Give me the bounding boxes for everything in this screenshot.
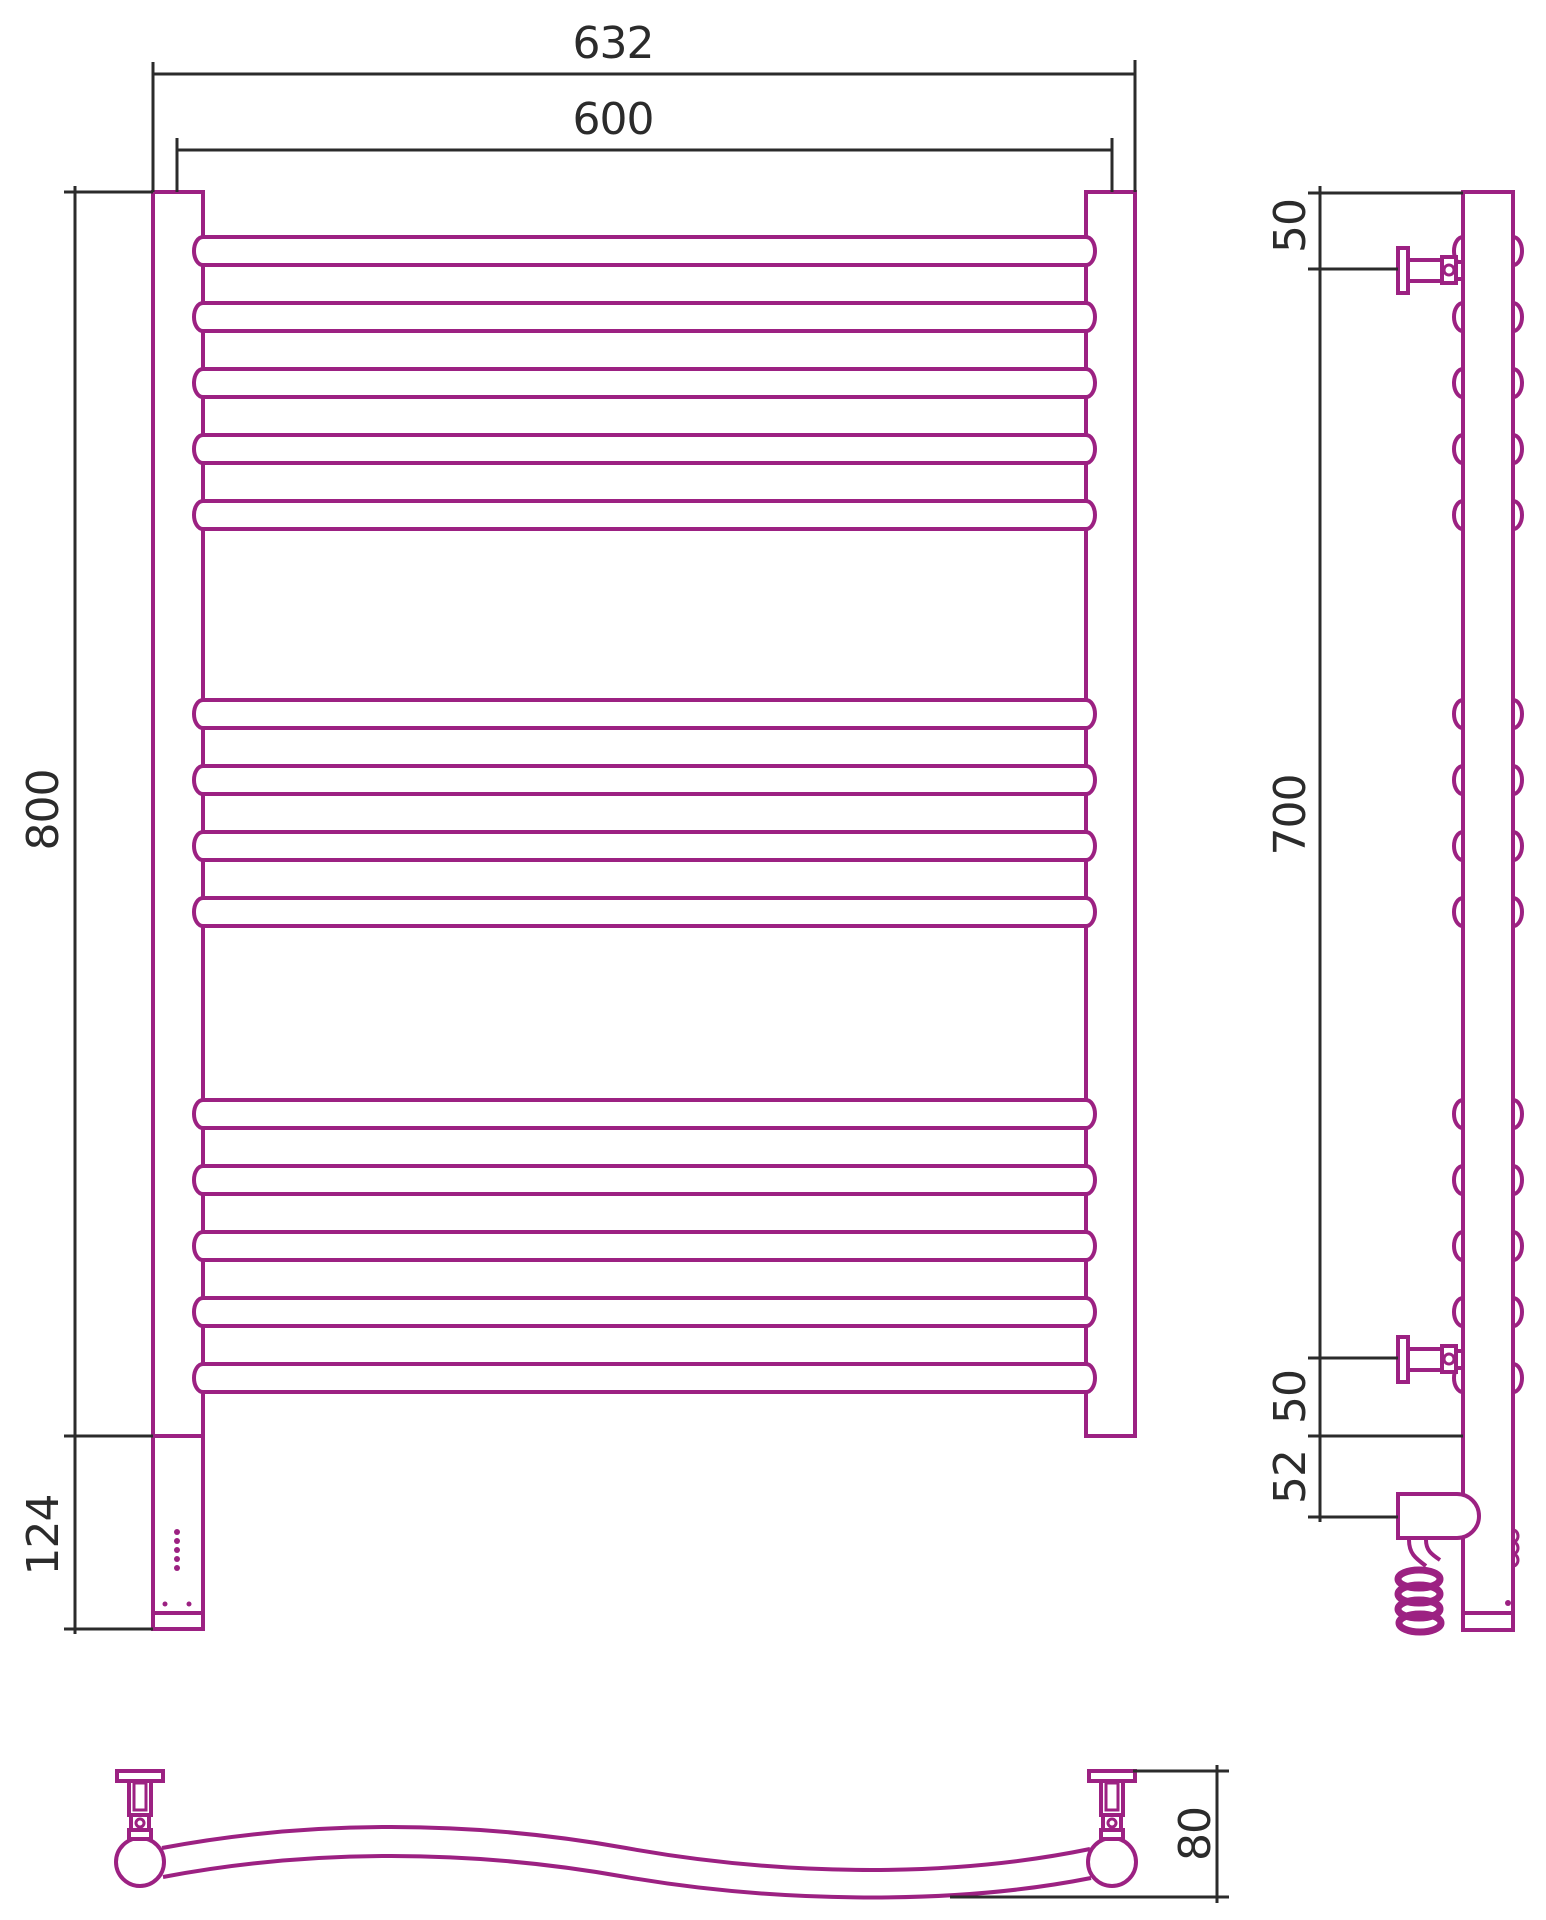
rung — [194, 237, 1095, 265]
dim-label-heater-offset: 52 — [1265, 1450, 1316, 1504]
wave-tube-front-edge — [162, 1827, 1090, 1870]
front-rungs — [194, 237, 1095, 1392]
rung — [194, 700, 1095, 728]
cable-coil-loop — [1399, 1614, 1441, 1632]
top-wall-bracket-left — [117, 1771, 163, 1839]
dim-label-height: 800 — [18, 770, 69, 851]
top-wall-bracket-right — [1089, 1771, 1135, 1839]
top-view — [116, 1771, 1136, 1897]
rung — [194, 303, 1095, 331]
side-led-dot — [1505, 1600, 1511, 1606]
dim-label-top-bracket-offset: 50 — [1265, 199, 1316, 253]
rung — [194, 1298, 1095, 1326]
led-dot — [174, 1529, 180, 1535]
dim-label-tube-width: 600 — [573, 94, 654, 145]
bracket-collar — [1456, 262, 1463, 279]
rung — [194, 435, 1095, 463]
cable-coil — [1398, 1570, 1441, 1632]
led-dot — [174, 1538, 180, 1544]
top-left-post-section — [116, 1838, 164, 1886]
rung — [194, 501, 1095, 529]
cable-stub-right-edge — [1426, 1540, 1440, 1560]
front-view — [153, 192, 1135, 1629]
dim-label-outer-width: 632 — [573, 18, 654, 69]
wave-tube-back-edge — [163, 1856, 1091, 1897]
front-screw-dot-left — [163, 1602, 168, 1607]
side-collector-bar — [1463, 192, 1513, 1630]
drawing-svg: 632 600 800 124 50 700 50 52 80 — [0, 0, 1546, 1920]
led-dot — [174, 1565, 180, 1571]
dimensions: 632 600 800 124 50 700 50 52 80 — [18, 18, 1463, 1903]
bracket-collar — [1456, 1351, 1463, 1368]
dim-label-housing-height: 124 — [18, 1495, 69, 1576]
heating-element-housing — [1398, 1494, 1479, 1538]
rung — [194, 898, 1095, 926]
dim-label-depth: 80 — [1170, 1807, 1221, 1861]
rung — [194, 766, 1095, 794]
rung — [194, 1364, 1095, 1392]
front-screw-dot-right — [187, 1602, 192, 1607]
towel-rail-technical-drawing: 632 600 800 124 50 700 50 52 80 — [0, 0, 1546, 1920]
dim-label-bracket-span: 700 — [1265, 775, 1316, 856]
rung — [194, 1166, 1095, 1194]
bracket-collar — [1101, 1830, 1123, 1839]
dim-label-bottom-bracket-offset: 50 — [1265, 1370, 1316, 1424]
led-dot — [174, 1556, 180, 1562]
top-right-post-section — [1088, 1838, 1136, 1886]
led-dot — [174, 1547, 180, 1553]
cable-stub-left-edge — [1409, 1540, 1426, 1566]
bracket-arm — [1408, 260, 1442, 281]
side-view — [1398, 192, 1522, 1632]
rung — [194, 832, 1095, 860]
rung — [194, 1100, 1095, 1128]
bracket-collar — [129, 1830, 151, 1839]
rung — [194, 1232, 1095, 1260]
rung — [194, 369, 1095, 397]
bracket-arm — [1408, 1349, 1442, 1370]
